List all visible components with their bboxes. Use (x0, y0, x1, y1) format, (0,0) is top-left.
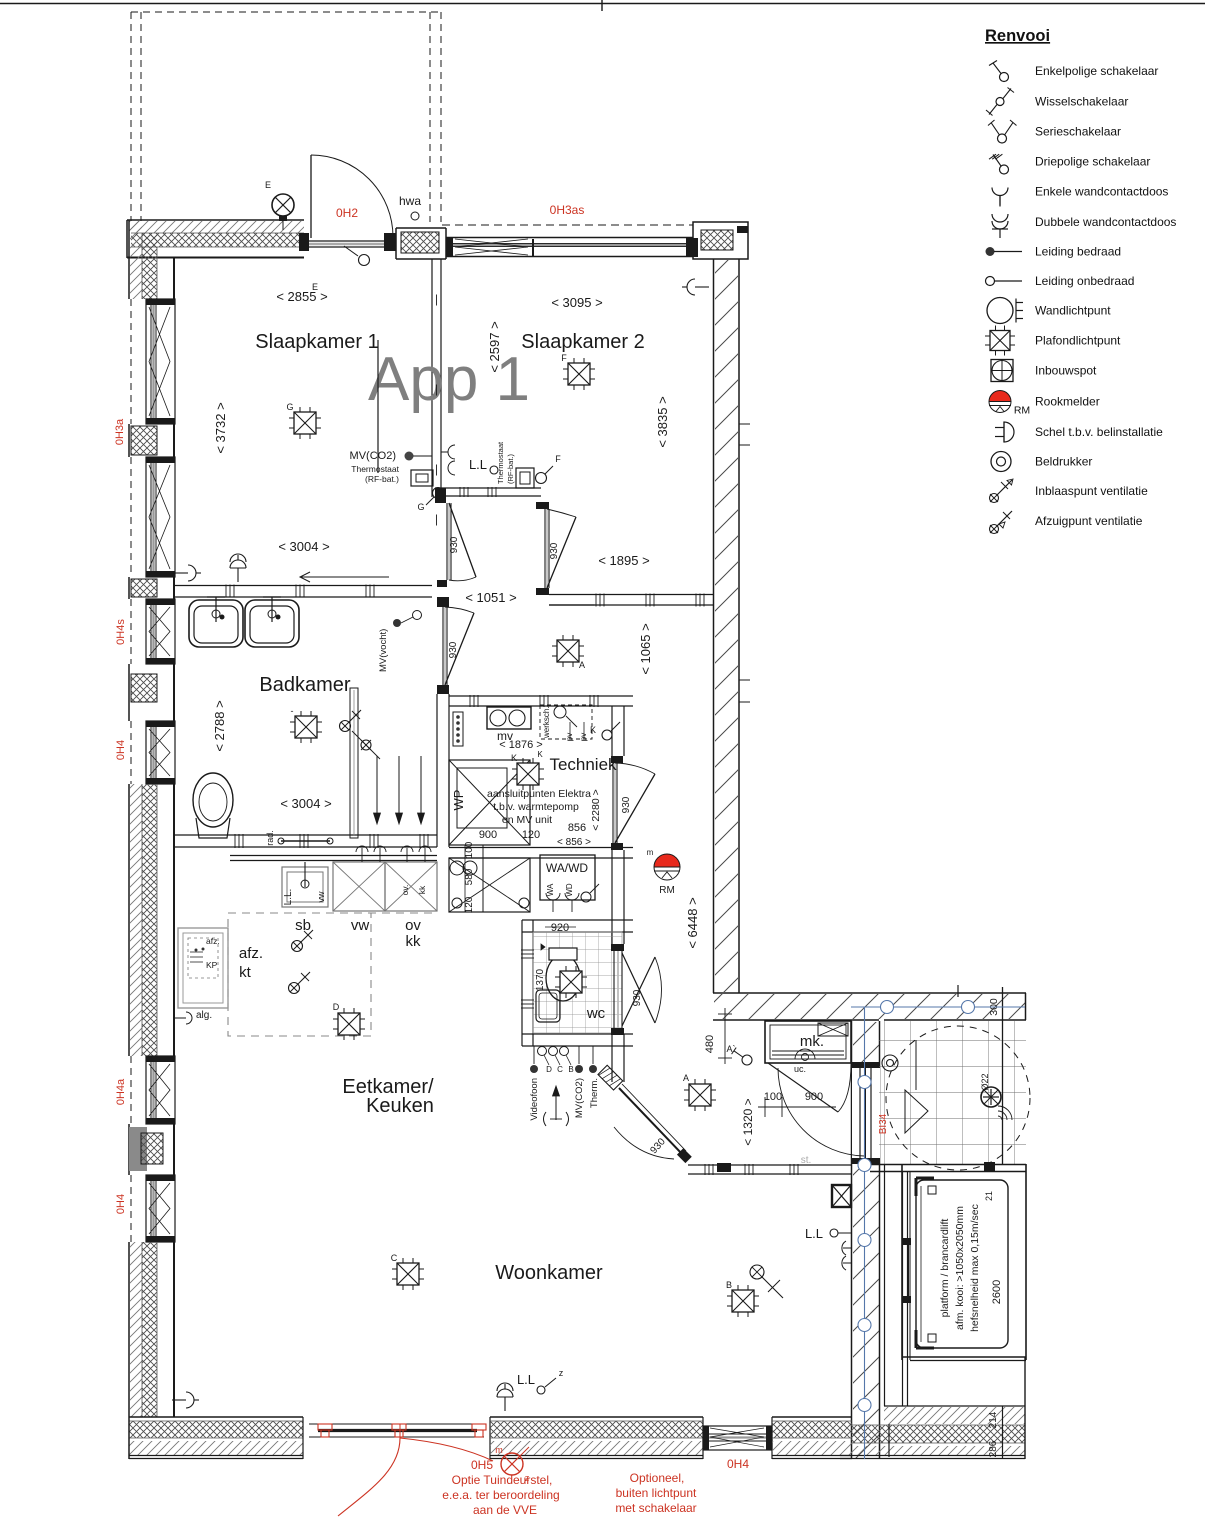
svg-text:buiten lichtpunt: buiten lichtpunt (616, 1486, 697, 1500)
svg-text:z: z (559, 1368, 564, 1378)
svg-text:< 2597 >: < 2597 > (487, 321, 502, 372)
svg-text:B: B (568, 1065, 573, 1074)
svg-text:kt: kt (239, 964, 252, 981)
svg-text:< 6448 >: < 6448 > (685, 897, 700, 948)
svg-text:A: A (683, 1073, 689, 1083)
svg-text:WA/WD: WA/WD (546, 861, 589, 875)
svg-text:Inblaaspunt ventilatie: Inblaaspunt ventilatie (1035, 484, 1148, 498)
svg-text:Wandlichtpunt: Wandlichtpunt (1035, 304, 1111, 318)
svg-text:MV(vocht): MV(vocht) (378, 629, 389, 672)
svg-text:Wisselschakelaar: Wisselschakelaar (1035, 95, 1128, 109)
svg-text:< 3004 >: < 3004 > (278, 539, 329, 554)
svg-text:930: 930 (449, 536, 460, 553)
svg-text:D: D (546, 1065, 552, 1074)
svg-text:L.L: L.L (805, 1226, 823, 1241)
svg-text:(RF-bat.): (RF-bat.) (365, 474, 399, 484)
svg-text:< 3095 >: < 3095 > (551, 295, 602, 310)
svg-text:alg.: alg. (196, 1010, 212, 1021)
svg-text:afz.: afz. (206, 936, 220, 946)
svg-text:sb: sb (295, 917, 311, 934)
svg-text:900: 900 (805, 1091, 823, 1103)
svg-text:kk: kk (417, 885, 427, 894)
svg-text:930: 930 (621, 796, 632, 813)
svg-text:900: 900 (479, 829, 497, 841)
svg-text:< 1051 >: < 1051 > (465, 590, 516, 605)
svg-text:Therm.: Therm. (589, 1078, 600, 1108)
svg-text:K: K (511, 753, 517, 763)
svg-text:WA: WA (546, 883, 555, 896)
svg-text:App 1: App 1 (368, 345, 530, 414)
svg-text:aan de VVE: aan de VVE (473, 1503, 537, 1517)
svg-text:Leiding onbedraad: Leiding onbedraad (1035, 274, 1134, 288)
svg-text:RM: RM (1014, 405, 1030, 417)
svg-text:F: F (561, 353, 567, 363)
svg-text:BI34: BI34 (878, 1113, 889, 1134)
svg-text:e.e.a. ter beroordeling: e.e.a. ter beroordeling (442, 1488, 559, 1502)
svg-text:100: 100 (464, 841, 475, 858)
svg-text:920: 920 (551, 922, 569, 934)
svg-text:wc: wc (586, 1005, 606, 1022)
svg-text:vw: vw (351, 917, 370, 934)
svg-text:0H2: 0H2 (336, 206, 358, 220)
svg-text:WP: WP (451, 790, 466, 811)
svg-text:< 856 >: < 856 > (557, 837, 591, 848)
svg-text:0H4: 0H4 (115, 740, 127, 760)
svg-text:KP: KP (206, 960, 218, 970)
svg-text:0H4s: 0H4s (115, 619, 127, 645)
svg-text:< 3835 >: < 3835 > (655, 396, 670, 447)
svg-text:1370: 1370 (535, 968, 546, 991)
svg-text:0H4: 0H4 (727, 1457, 749, 1471)
svg-text:MV(CO2): MV(CO2) (574, 1078, 585, 1118)
svg-text:uc.: uc. (794, 1064, 806, 1074)
svg-text:286: 286 (988, 1440, 999, 1457)
svg-text:930: 930 (632, 989, 643, 1006)
svg-text:RM: RM (659, 885, 675, 896)
svg-text:K: K (590, 725, 596, 735)
svg-text:Videofoon: Videofoon (529, 1078, 540, 1121)
svg-text:hefsnelheid max 0,15m/sec: hefsnelheid max 0,15m/sec (969, 1204, 981, 1332)
svg-text:Slaapkamer 2: Slaapkamer 2 (521, 331, 644, 353)
svg-text:A`: A` (727, 1044, 736, 1054)
svg-text:pv: pv (579, 733, 588, 741)
svg-text:Ø22: Ø22 (980, 1073, 990, 1090)
svg-text:0H3as: 0H3as (550, 203, 585, 217)
svg-text:pv: pv (565, 733, 574, 741)
svg-text:Thermostaat: Thermostaat (496, 441, 505, 484)
svg-text:z: z (525, 1473, 530, 1483)
svg-text:E: E (312, 282, 318, 292)
svg-text:Keuken: Keuken (366, 1095, 434, 1117)
svg-text:hwa: hwa (399, 194, 421, 208)
svg-text:0H4a: 0H4a (115, 1078, 127, 1105)
svg-text:Slaapkamer 1: Slaapkamer 1 (255, 331, 378, 353)
svg-text:afz.: afz. (239, 945, 263, 962)
svg-text:Schel t.b.v. belinstallatie: Schel t.b.v. belinstallatie (1035, 425, 1163, 439)
svg-text:120: 120 (522, 829, 540, 841)
svg-text:< 1895 >: < 1895 > (598, 553, 649, 568)
svg-text:930: 930 (549, 542, 560, 559)
svg-text:L.L: L.L (469, 457, 487, 472)
svg-text:Renvooi: Renvooi (985, 27, 1050, 45)
svg-text:vw: vw (316, 891, 326, 903)
svg-text:m: m (495, 1445, 503, 1455)
svg-text:ov.: ov. (400, 885, 410, 896)
svg-text:Optioneel,: Optioneel, (630, 1471, 685, 1485)
svg-text:WD: WD (565, 883, 574, 897)
svg-text:< 1065 >: < 1065 > (638, 623, 653, 674)
svg-text:214: 214 (988, 1411, 999, 1428)
svg-text:C: C (557, 1065, 563, 1074)
svg-text:Rookmelder: Rookmelder (1035, 395, 1100, 409)
svg-text:Techniek: Techniek (549, 755, 617, 774)
svg-text:ov: ov (405, 917, 421, 934)
svg-text:werksch.: werksch. (542, 706, 551, 739)
svg-text:F: F (555, 454, 561, 464)
svg-text:Dubbele wandcontactdoos: Dubbele wandcontactdoos (1035, 215, 1176, 229)
svg-text:Optie Tuindeurstel,: Optie Tuindeurstel, (452, 1473, 553, 1487)
svg-text:Woonkamer: Woonkamer (495, 1262, 603, 1284)
svg-text:Beldrukker: Beldrukker (1035, 455, 1092, 469)
svg-text:(RF-bat.): (RF-bat.) (506, 453, 515, 484)
svg-text:Afzuigpunt ventilatie: Afzuigpunt ventilatie (1035, 514, 1143, 528)
svg-text:m: m (647, 848, 654, 857)
svg-text:0H3a: 0H3a (114, 418, 126, 445)
svg-text:Leiding bedraad: Leiding bedraad (1035, 245, 1121, 259)
svg-text:afm. kooi: >1050x2050mm: afm. kooi: >1050x2050mm (954, 1206, 966, 1330)
svg-text:< 1320 >: < 1320 > (741, 1098, 755, 1145)
svg-text:G: G (286, 402, 293, 412)
svg-text:B: B (726, 1280, 732, 1290)
svg-text:Enkelpolige schakelaar: Enkelpolige schakelaar (1035, 64, 1158, 78)
svg-text:E: E (265, 180, 271, 190)
svg-text:< 3732 >: < 3732 > (213, 402, 228, 453)
svg-text:Plafondlichtpunt: Plafondlichtpunt (1035, 334, 1121, 348)
svg-text:platform / brancardlift: platform / brancardlift (939, 1219, 951, 1318)
svg-text:< 1876 >: < 1876 > (499, 739, 542, 751)
svg-text:met schakelaar: met schakelaar (615, 1501, 696, 1515)
svg-text:930: 930 (448, 641, 459, 658)
svg-text:Inbouwspot: Inbouwspot (1035, 364, 1097, 378)
svg-text:A: A (579, 660, 585, 670)
svg-text:L.L: L.L (517, 1372, 535, 1387)
svg-text:< 2280 >: < 2280 > (590, 789, 602, 830)
svg-text:480: 480 (704, 1035, 716, 1053)
svg-text:en MV unit: en MV unit (502, 814, 552, 826)
svg-text:aansluitpunten Elektra: aansluitpunten Elektra (487, 788, 591, 800)
svg-text:C: C (391, 1253, 398, 1263)
svg-text:< 2788 >: < 2788 > (212, 700, 227, 751)
svg-text:100: 100 (764, 1091, 782, 1103)
svg-text:Thermostaat: Thermostaat (351, 464, 399, 474)
svg-text:MV(CO2): MV(CO2) (350, 450, 396, 462)
svg-text:< 3004 >: < 3004 > (280, 796, 331, 811)
svg-text:kk: kk (406, 933, 422, 950)
svg-text:mk.: mk. (800, 1033, 824, 1050)
svg-text:0H4: 0H4 (115, 1194, 127, 1214)
svg-text:G: G (417, 502, 424, 512)
svg-text:rad.: rad. (265, 830, 275, 846)
svg-text:21: 21 (984, 1191, 994, 1201)
svg-text:K: K (537, 750, 543, 759)
svg-text:L.L.: L.L. (283, 889, 294, 906)
svg-text:st.: st. (801, 1155, 812, 1166)
svg-text:2600: 2600 (991, 1280, 1003, 1304)
svg-text:580: 580 (464, 868, 475, 885)
svg-text:Badkamer: Badkamer (259, 674, 350, 696)
svg-text:< 2855 >: < 2855 > (276, 289, 327, 304)
svg-text:Enkele wandcontactdoos: Enkele wandcontactdoos (1035, 185, 1168, 199)
svg-text:t.b.v. warmtepomp: t.b.v. warmtepomp (493, 801, 579, 813)
svg-text:-: - (291, 706, 294, 716)
svg-text:Serieschakelaar: Serieschakelaar (1035, 125, 1121, 139)
svg-text:D: D (333, 1002, 340, 1012)
svg-text:856: 856 (568, 822, 586, 834)
svg-text:Driepolige schakelaar: Driepolige schakelaar (1035, 155, 1150, 169)
